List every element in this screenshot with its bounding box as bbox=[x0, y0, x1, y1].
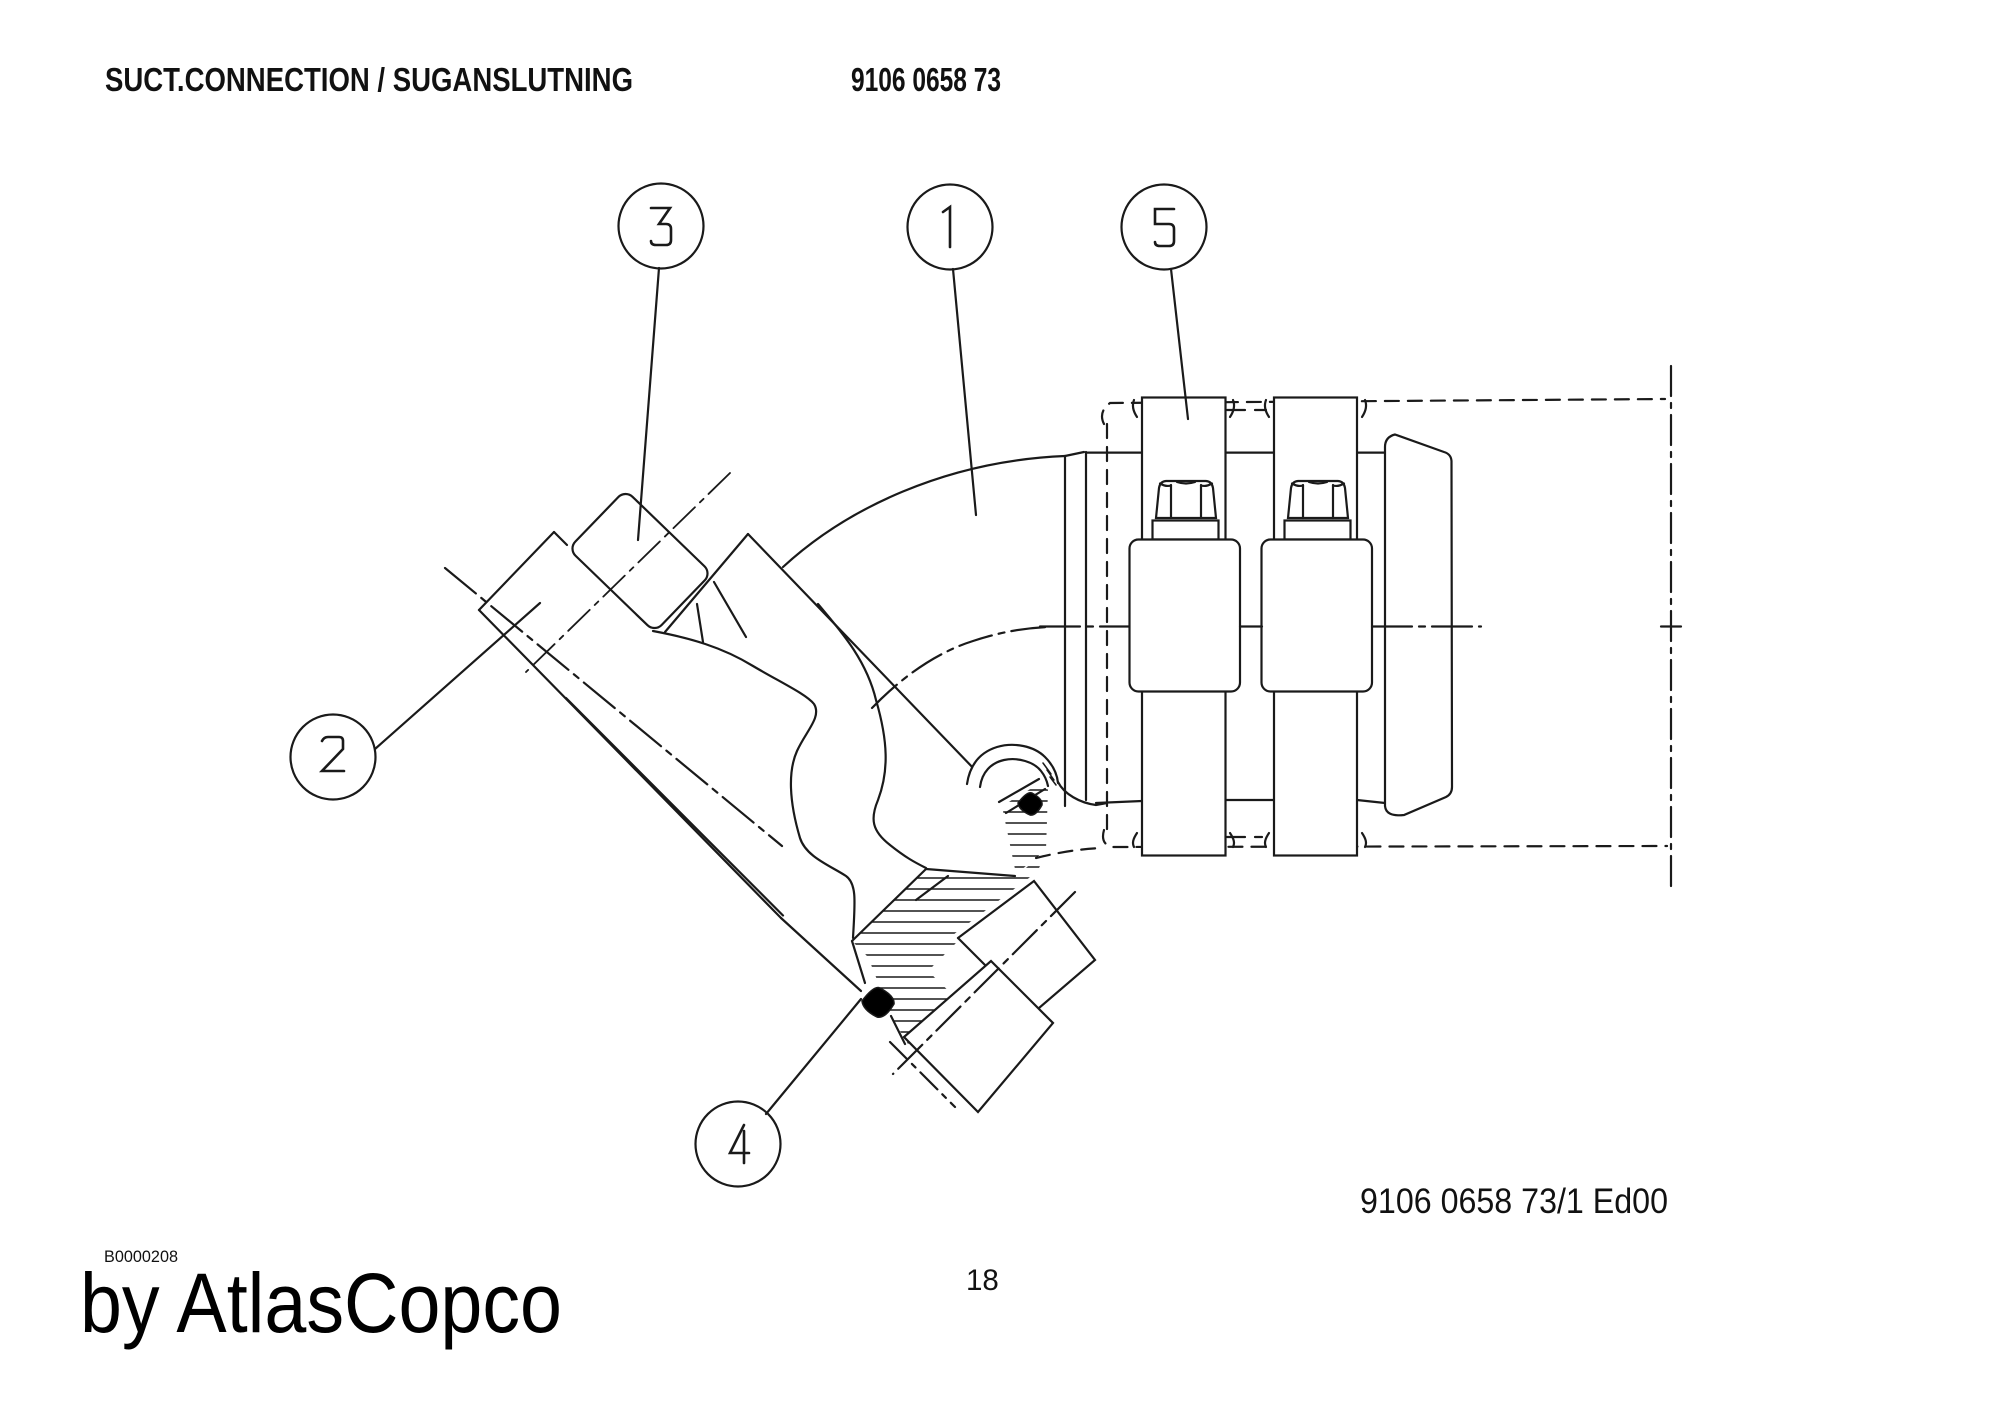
svg-text:by AtlasCopco: by AtlasCopco bbox=[80, 1256, 562, 1350]
svg-text:9106 0658 73: 9106 0658 73 bbox=[851, 61, 1001, 98]
svg-text:18: 18 bbox=[966, 1264, 999, 1297]
svg-text:9106 0658 73/1 Ed00: 9106 0658 73/1 Ed00 bbox=[1360, 1182, 1668, 1221]
svg-text:SUCT.CONNECTION / SUGANSLUTNIN: SUCT.CONNECTION / SUGANSLUTNING bbox=[105, 61, 633, 98]
